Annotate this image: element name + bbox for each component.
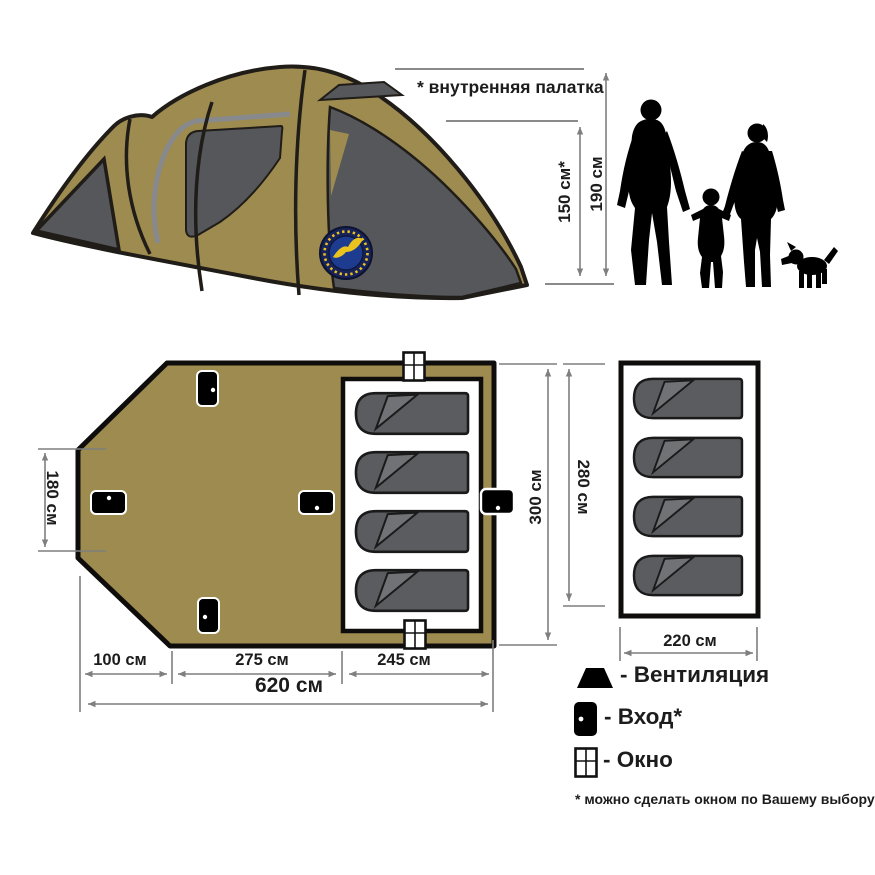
- sleeping-bag-icon: [634, 497, 742, 536]
- dog-silhouette: [781, 242, 838, 288]
- tent-illustration: [33, 67, 527, 299]
- door-handle-dot: [203, 615, 207, 619]
- window-icon: [405, 621, 426, 649]
- child-silhouette: [691, 189, 731, 289]
- family-silhouette: [617, 100, 838, 289]
- segment-middle-label: 275 см: [217, 650, 307, 670]
- brand-logo: [320, 227, 372, 279]
- total-length-label: 620 см: [229, 675, 349, 697]
- segment-vestibule-label: 100 см: [75, 650, 165, 670]
- plan-side-dimension-label: 180 см: [41, 438, 63, 558]
- inner-height-label: 150 см*: [554, 132, 576, 252]
- door-handle-dot: [496, 506, 500, 510]
- plan-depth-dimension-label: 300 см: [525, 437, 547, 557]
- woman-silhouette: [722, 124, 785, 288]
- legend-entrance-label: - Вход*: [604, 706, 682, 728]
- inner-tent-note: * внутренняя палатка: [417, 76, 604, 98]
- door-icon: [198, 598, 219, 633]
- door-handle-dot: [107, 496, 111, 500]
- tent-spec-diagram: * внутренняя палатка 150 см* 190 см 180 …: [0, 0, 875, 875]
- sleeping-bag-icon: [356, 393, 468, 434]
- door-icon: [299, 491, 334, 514]
- sleeping-bag-icon: [356, 452, 468, 493]
- door-handle-dot: [579, 717, 584, 722]
- door-handle-dot: [211, 388, 215, 392]
- door-icon: [481, 489, 514, 514]
- legend-window-label: - Окно: [603, 749, 673, 771]
- door-handle-dot: [315, 506, 319, 510]
- legend-footnote: * можно сделать окном по Вашему выбору: [575, 788, 875, 810]
- inner-width-label: 220 см: [645, 631, 735, 651]
- diagram-graphics: [0, 0, 875, 875]
- segment-inner-label: 245 см: [359, 650, 449, 670]
- sleeping-bag-icon: [634, 379, 742, 418]
- window-icon: [576, 749, 597, 777]
- sleeping-bag-icon: [634, 438, 742, 477]
- window-icon: [404, 353, 425, 381]
- legend-ventilation-label: - Вентиляция: [620, 664, 769, 686]
- man-silhouette: [617, 100, 690, 286]
- door-icon: [574, 702, 597, 736]
- door-icon: [91, 491, 126, 514]
- sleeping-bag-icon: [356, 570, 468, 611]
- door-icon: [197, 371, 218, 406]
- inner-depth-dimension-label: 280 см: [572, 427, 594, 547]
- outer-height-label: 190 см: [586, 124, 608, 244]
- sleeping-bag-icon: [634, 556, 742, 595]
- vent-icon: [577, 668, 613, 688]
- sleeping-bag-icon: [356, 511, 468, 552]
